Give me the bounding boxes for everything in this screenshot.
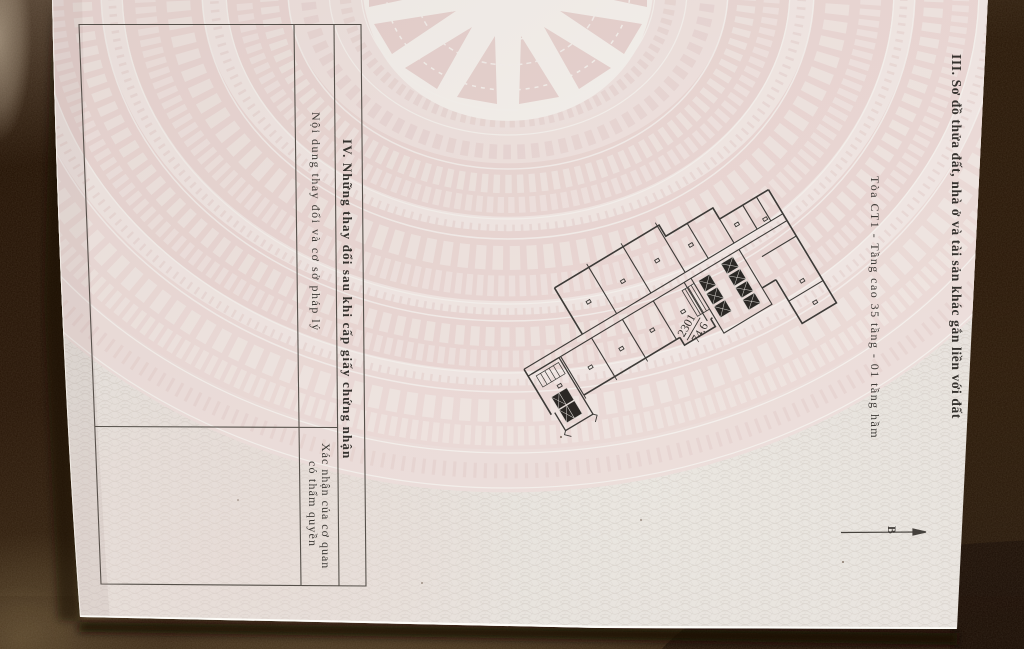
svg-text:B: B [885, 526, 897, 534]
svg-text:có thẩm quyền: có thẩm quyền [306, 461, 320, 547]
svg-text:Nội dung thay đổi và cơ sở phá: Nội dung thay đổi và cơ sở pháp lý [309, 112, 323, 332]
svg-text:Xác nhận của cơ quan: Xác nhận của cơ quan [319, 443, 333, 569]
svg-text:III. Sơ đồ thửa đất, nhà ở và: III. Sơ đồ thửa đất, nhà ở và tài sản kh… [949, 54, 964, 419]
svg-text:Tòa CT1 - Tầng cao 35 tầng - 0: Tòa CT1 - Tầng cao 35 tầng - 01 tầng hầm [868, 176, 882, 439]
svg-text:IV. Những thay đổi sau khi cấp: IV. Những thay đổi sau khi cấp giấy chứn… [340, 139, 355, 459]
